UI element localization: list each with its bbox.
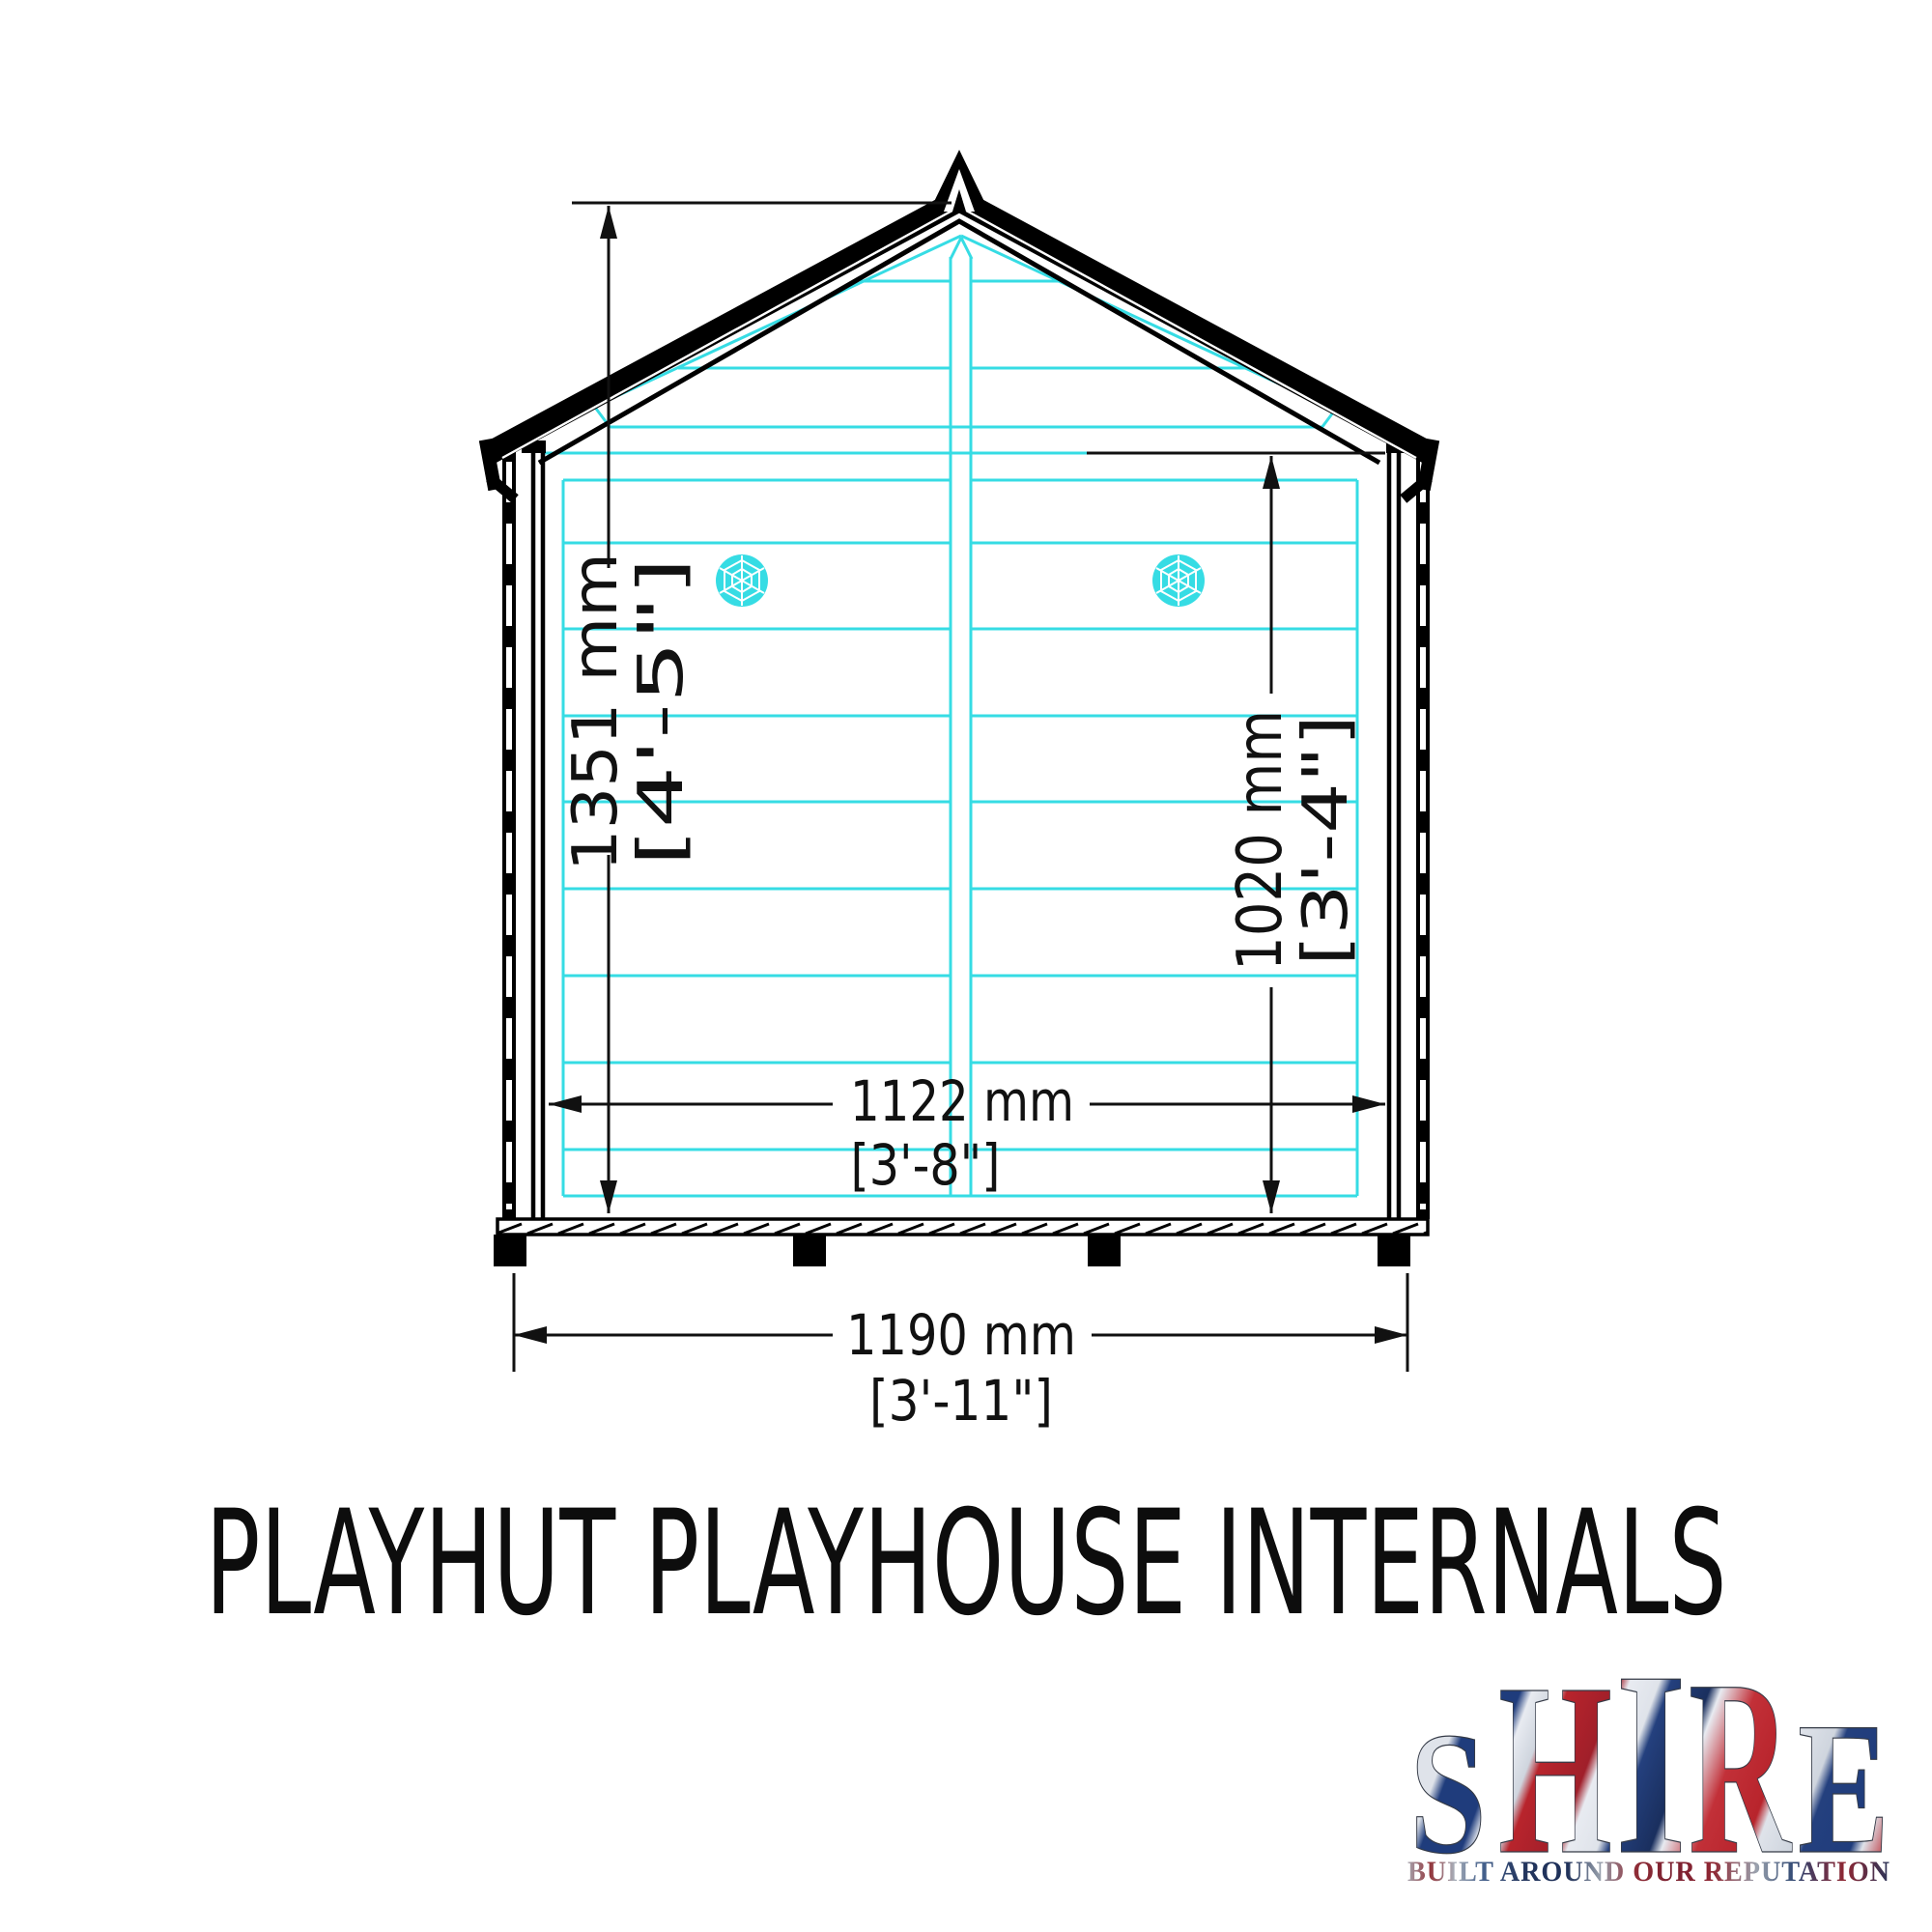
dim-overall-width-metric: 1190 mm [846,1302,1076,1368]
shire-logo: S H I R E BUILT AROUND OUR REPUTATION [1407,1618,1890,1910]
dim-overall-height-imperial: [4'-5"] [626,557,697,867]
dim-internal-height-metric: 1020 mm [1225,710,1296,971]
floor-bearers [494,1235,1410,1266]
apex-wedge [951,238,972,259]
playhouse-internals-drawing-page: 1351 mm [4'-5"] 1020 mm [3'-4"] 1122 mm … [0,0,1932,1932]
page-title: PLAYHUT PLAYHOUSE INTERNALS [206,1480,1727,1648]
centre-post [951,257,971,1196]
dim-internal-width-metric: 1122 mm [850,1068,1074,1134]
technical-drawing-canvas: 1351 mm [4'-5"] 1020 mm [3'-4"] 1122 mm … [0,0,1932,1932]
floor-slab [497,1219,1428,1235]
logo-tagline: BUILT AROUND OUR REPUTATION [1407,1856,1890,1888]
wood-knot-icon-right [1152,554,1205,607]
dim-internal-width-imperial: [3'-8"] [851,1132,1001,1198]
dim-overall-height-metric: 1351 mm [560,553,632,871]
dim-overall-width-imperial: [3'-11"] [869,1368,1053,1434]
wood-knot-icon-left [716,554,768,607]
dim-internal-height-imperial: [3'-4"] [1291,715,1362,966]
